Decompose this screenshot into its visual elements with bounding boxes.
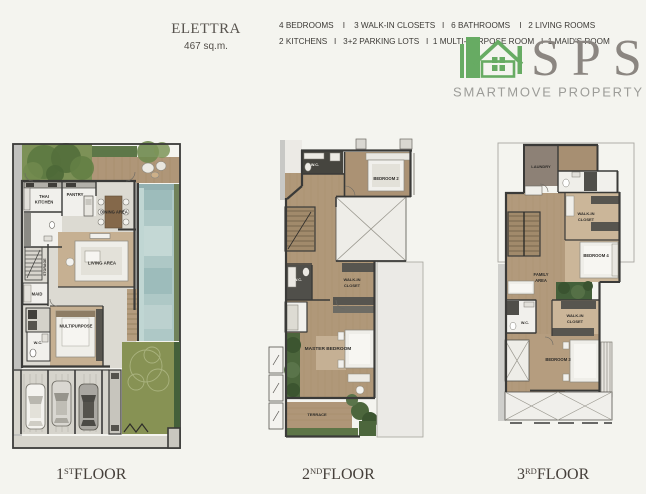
svg-text:MULTIPURPOSE: MULTIPURPOSE: [60, 324, 93, 329]
svg-text:W.C.: W.C.: [311, 163, 319, 167]
svg-text:LIVING AREA: LIVING AREA: [88, 261, 117, 266]
svg-text:1STFLOOR: 1STFLOOR: [56, 466, 127, 483]
svg-text:AREA: AREA: [535, 278, 547, 283]
svg-text:W.C.: W.C.: [521, 321, 529, 325]
svg-text:3RDFLOOR: 3RDFLOOR: [517, 466, 590, 483]
svg-text:MAID: MAID: [32, 292, 43, 297]
svg-text:TERRACE: TERRACE: [307, 412, 327, 417]
svg-text:WALK-IN: WALK-IN: [566, 313, 583, 318]
svg-text:LAUNDRY: LAUNDRY: [531, 164, 551, 169]
svg-text:MASTER BEDROOM: MASTER BEDROOM: [305, 346, 352, 352]
svg-text:DINING AREA: DINING AREA: [100, 210, 128, 215]
svg-text:CLOSET: CLOSET: [567, 319, 584, 324]
svg-text:BEDROOM 3: BEDROOM 3: [545, 357, 571, 362]
svg-text:KITCHEN: KITCHEN: [35, 200, 54, 205]
svg-text:PANTRY: PANTRY: [67, 192, 84, 197]
svg-text:FAMILY: FAMILY: [534, 272, 549, 277]
svg-text:WALK-IN: WALK-IN: [343, 277, 360, 282]
svg-text:CLOSET: CLOSET: [578, 217, 595, 222]
svg-text:2NDFLOOR: 2NDFLOOR: [302, 466, 375, 483]
svg-text:W.C.: W.C.: [34, 340, 43, 345]
svg-text:CLOSET: CLOSET: [344, 283, 361, 288]
svg-text:WALK-IN: WALK-IN: [577, 211, 594, 216]
svg-text:STORAGE: STORAGE: [43, 258, 47, 276]
svg-text:BEDROOM 2: BEDROOM 2: [373, 176, 399, 181]
svg-text:BEDROOM 4: BEDROOM 4: [583, 253, 609, 258]
svg-text:W.C.: W.C.: [294, 278, 302, 282]
svg-text:THAI: THAI: [39, 194, 49, 199]
